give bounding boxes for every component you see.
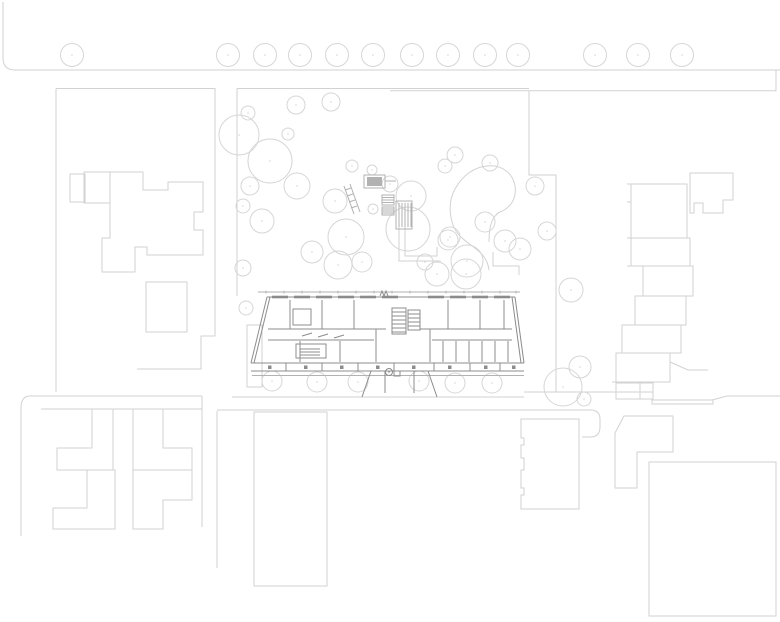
tree-icon-center [351,165,353,167]
tree-icon-center [484,221,486,223]
plan-line [428,371,437,397]
site-line [529,91,556,392]
building-outline [643,266,693,296]
tree-icon-center [579,366,581,368]
tree-icon-center [227,54,229,56]
plan-line [512,366,516,370]
tree-icon-center [336,54,338,56]
plan-line [360,296,376,299]
site-line [450,166,515,270]
trees [61,44,694,407]
tree-icon-center [264,54,266,56]
garden-feature [345,188,351,190]
tree-icon-center [411,54,413,56]
tree-icon-center [504,240,506,242]
site-line [217,410,600,437]
building-outline [53,470,115,529]
plan-line [268,366,272,370]
building-outline [133,409,192,470]
tree-icon-center [491,382,493,384]
tree-icon-center [570,289,572,291]
building-outline [57,409,113,470]
tree-icon-center [534,185,536,187]
site-line [493,252,519,275]
tree-icon-center [389,183,391,185]
tree-icon-center [261,220,263,222]
tree-icon-center [583,398,585,400]
plan-line [362,371,371,397]
tree-icon-center [562,386,564,388]
building-outline [616,353,670,382]
plan-line [450,296,466,299]
plan-line [376,366,380,370]
tree-icon-center [357,381,359,383]
tree-icon-center [316,381,318,383]
building-outline [649,462,776,616]
building-outline [70,174,85,202]
tree-icon-center [247,112,249,114]
building-outline [652,400,713,404]
garden-feature [367,177,382,186]
garden-feature [396,201,412,229]
neighbor-buildings [53,172,776,616]
tree-icon-center [311,251,313,253]
tree-icon-center [484,54,486,56]
site-plan [0,0,780,622]
tree-icon-center [546,230,548,232]
tree-icon-center [681,54,683,56]
site-line [21,396,30,536]
tree-icon-center [330,101,332,103]
plan-line [472,296,488,299]
tree-icon-center [372,208,374,210]
plan-line [338,296,354,299]
plan-line [334,335,344,338]
tree-icon-center [295,104,297,106]
building-outline [631,238,690,266]
tree-icon-center [334,200,336,202]
building-outline [615,416,673,488]
tree-icon-center [637,54,639,56]
tree-icon-center [410,195,412,197]
plan-line [302,333,312,336]
tree-icon-center [454,154,456,156]
building-outline [521,419,579,509]
tree-icon-center [489,162,491,164]
site-line [670,362,708,370]
tree-icon-center [337,264,339,266]
building-outline [102,172,203,272]
tree-icon-center [299,54,301,56]
tree-icon-center [361,261,363,263]
tree-icon-center [436,273,438,275]
building-outline [690,173,733,213]
building-outline [247,325,262,387]
building-outline [635,296,686,325]
tree-icon-center [466,260,468,262]
plan-line [293,309,311,325]
site-boundaries [3,2,780,568]
tree-icon-center [447,54,449,56]
plan-line-center [388,371,390,373]
tree-icon-center [594,54,596,56]
tree-icon-center [271,380,273,382]
tree-icon-center [465,273,467,275]
tree-icon-center [242,205,244,207]
site-plan-canvas [0,0,780,622]
tree-icon-center [287,133,289,135]
tree-icon-center [345,236,347,238]
plan-line [494,296,510,299]
plan-line [428,296,444,299]
building-outline [254,412,327,586]
plan-line [412,366,416,370]
plan-line [316,296,332,299]
site-line [390,70,776,91]
site-line [405,226,437,256]
tree-icon-center [371,169,373,171]
plan-line [294,296,310,299]
tree-icon-center [418,380,420,382]
tree-icon-center [269,160,271,162]
tree-icon-center [454,382,456,384]
building-outline [146,282,187,332]
tree-icon-center [238,134,240,136]
building-outline [622,325,681,353]
tree-icon-center [372,54,374,56]
plan-line [318,334,328,337]
plan-line [408,310,420,330]
building-outline [631,184,687,238]
tree-icon-center [444,165,446,167]
site-line [653,396,780,400]
plan-line [340,366,344,370]
tree-icon-center [242,267,244,269]
garden-feature [347,194,353,196]
building-outline [616,383,653,399]
tree-icon-center [447,239,449,241]
tree-icon-center [449,236,451,238]
tree-icon-center [519,248,521,250]
building-outline [133,470,192,529]
tree-icon-center [424,261,426,263]
building-outline [84,172,110,203]
plan-line [272,296,288,299]
garden-features [252,175,524,376]
site-line [3,2,780,70]
tree-icon-center [517,54,519,56]
site-line [56,89,215,370]
plan-line [484,366,488,370]
tree-icon-center [71,54,73,56]
plan-line [448,366,452,370]
garden-feature [349,200,355,202]
plan-line [304,366,308,370]
tree-icon-center [249,185,251,187]
main-building-plan [251,291,524,397]
tree-icon-center [296,185,298,187]
tree-icon-center [245,307,247,309]
